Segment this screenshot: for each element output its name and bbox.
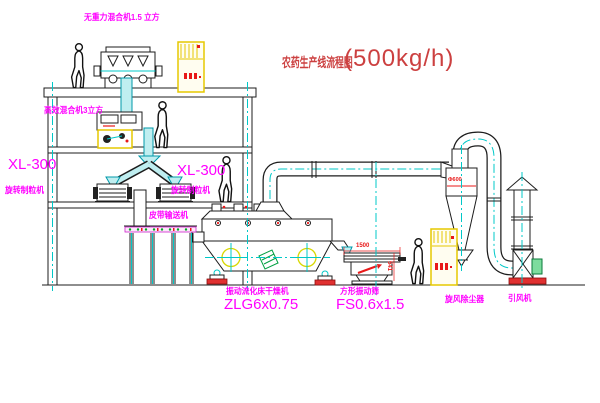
screen-model-label: FS0.6x1.5 [336,297,404,312]
vibrating-screen [342,247,406,284]
duct-riser-funnel [256,202,284,211]
diagram-title: 农药生产线流程图 [282,56,353,69]
cyclone-dim: Φ600 [448,178,462,184]
conveyor-legs [130,233,193,284]
cyclone-name-label: 旋风除尘器 [445,295,484,304]
dryer-name-label: 振动流化床干燥机 [226,287,289,296]
person-figure [155,102,168,148]
fluid-bed-dryer [192,204,350,285]
belt-conveyor-label: 皮带输送机 [149,211,188,220]
screen-height-dim: 541 [386,261,392,271]
diagram-title-capacity: (500kg/h) [344,47,454,71]
dryer-spring-support-right [315,271,335,285]
floor2-mixer-label: 高效混合机3立方 [44,106,103,115]
screen-name-label: 方形振动筛 [340,287,379,296]
fan-name-label: 引风机 [508,294,531,303]
granulator-right-model: XL-300 [177,163,225,178]
granulator-left-model: XL-300 [8,157,56,172]
dryer-exhaust-duct [270,161,452,216]
control-cabinet-right [431,229,457,285]
granulator-right-name: 旋转制粒机 [171,186,210,195]
dryer-model-label: ZLG6x0.75 [224,297,298,312]
top-mixer-label: 无重力混合机1.5 立方 [84,13,160,22]
dryer-spring-support-left [207,270,227,284]
person-figure [411,239,424,284]
screen-length-dim: 1500 [356,243,369,249]
person-figure [72,44,84,88]
belt-conveyor [124,226,197,284]
high-efficiency-mixer [97,112,160,167]
y-splitter-chute [114,164,175,183]
control-cabinet-top [178,42,204,92]
mixer-discharge-duct [121,78,132,112]
granulator-left-name: 旋转制粒机 [5,186,44,195]
process-flow-diagram: 无重力混合机1.5 立方 农药生产线流程图 (500kg/h) 高效混合机3立方… [0,0,600,403]
